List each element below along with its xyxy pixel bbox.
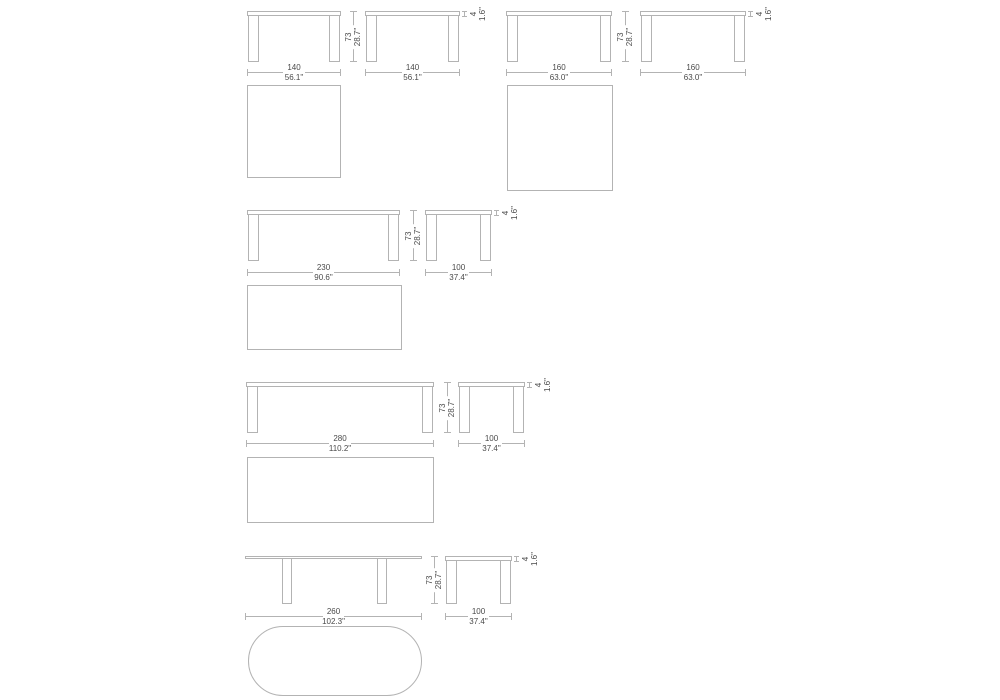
height-in-label: 28.7" xyxy=(448,398,457,416)
height-cm-label: 73 xyxy=(439,398,448,416)
table-leg-shape xyxy=(426,214,437,261)
top-view-rect-280 xyxy=(247,457,434,523)
front-view-table-140 xyxy=(247,11,341,62)
table-leg-shape xyxy=(734,15,745,62)
width-dimension-260-side: 100 37.4" xyxy=(445,607,512,626)
table-leg-shape xyxy=(248,15,259,62)
width-cm-label: 160 xyxy=(682,63,703,73)
height-cm-label: 73 xyxy=(405,226,414,244)
front-view-table-230 xyxy=(247,210,400,261)
thickness-cm-label: 4 xyxy=(521,552,530,566)
tabletop-shape xyxy=(365,11,460,16)
top-view-rect-230 xyxy=(247,285,402,350)
table-leg-shape xyxy=(500,560,511,604)
height-dimension-260: 73 28.7" xyxy=(425,556,444,604)
table-leg-shape xyxy=(247,386,258,433)
side-view-table-260 xyxy=(445,556,512,604)
width-in-label: 37.4" xyxy=(479,444,503,453)
side-view-table-140 xyxy=(365,11,460,62)
table-leg-shape xyxy=(446,560,457,604)
width-dimension-230-front: 230 90.6" xyxy=(247,263,400,282)
thickness-dimension-230: 4 1.6" xyxy=(494,210,526,216)
width-dimension-280-front: 280 110.2" xyxy=(246,434,434,453)
thickness-cm-label: 4 xyxy=(534,378,543,392)
table-leg-shape xyxy=(377,558,387,604)
top-view-square-140 xyxy=(247,85,341,178)
width-in-label: 63.0" xyxy=(681,73,705,82)
height-in-label: 28.7" xyxy=(435,571,444,589)
width-cm-label: 100 xyxy=(468,607,489,617)
table-leg-shape xyxy=(641,15,652,62)
width-dimension-230-side: 100 37.4" xyxy=(425,263,492,282)
thickness-dimension-160: 4 1.6" xyxy=(748,11,780,17)
tabletop-shape xyxy=(245,556,422,559)
thickness-dimension-280: 4 1.6" xyxy=(527,382,559,388)
width-in-label: 37.4" xyxy=(466,617,490,626)
width-cm-label: 140 xyxy=(402,63,423,73)
width-dimension-160-side: 160 63.0" xyxy=(640,63,746,82)
table-leg-shape xyxy=(329,15,340,62)
width-in-label: 110.2" xyxy=(326,444,354,453)
table-leg-shape xyxy=(513,386,524,433)
side-view-table-280 xyxy=(458,382,525,433)
table-leg-shape xyxy=(448,15,459,62)
tabletop-shape xyxy=(506,11,612,16)
width-dimension-280-side: 100 37.4" xyxy=(458,434,525,453)
height-in-label: 28.7" xyxy=(626,27,635,45)
tabletop-shape xyxy=(246,382,434,387)
table-leg-shape xyxy=(366,15,377,62)
height-dimension-280: 73 28.7" xyxy=(438,382,457,433)
table-leg-shape xyxy=(248,214,259,261)
width-cm-label: 100 xyxy=(448,263,469,273)
tabletop-shape xyxy=(247,11,341,16)
technical-drawing-canvas: 73 28.7" 4 1.6" 140 56.1" 140 56.1" xyxy=(0,0,1000,700)
thickness-cm-label: 4 xyxy=(501,206,510,220)
thickness-dimension-260: 4 1.6" xyxy=(514,556,546,562)
height-dimension-140: 73 28.7" xyxy=(344,11,363,62)
width-dimension-160-front: 160 63.0" xyxy=(506,63,612,82)
table-leg-shape xyxy=(480,214,491,261)
width-in-label: 63.0" xyxy=(547,73,571,82)
width-cm-label: 100 xyxy=(481,434,502,444)
table-leg-shape xyxy=(422,386,433,433)
front-view-table-260 xyxy=(245,556,422,604)
table-leg-shape xyxy=(507,15,518,62)
width-cm-label: 160 xyxy=(548,63,569,73)
thickness-cm-label: 4 xyxy=(755,7,764,21)
height-cm-label: 73 xyxy=(345,27,354,45)
thickness-in-label: 1.6" xyxy=(530,552,539,566)
height-dimension-230: 73 28.7" xyxy=(404,210,423,261)
width-in-label: 90.6" xyxy=(311,273,335,282)
width-cm-label: 230 xyxy=(313,263,334,273)
top-view-square-160 xyxy=(507,85,613,191)
table-leg-shape xyxy=(459,386,470,433)
side-view-table-160 xyxy=(640,11,746,62)
width-cm-label: 140 xyxy=(283,63,304,73)
width-dimension-140-side: 140 56.1" xyxy=(365,63,460,82)
height-cm-label: 73 xyxy=(617,27,626,45)
thickness-dimension-140: 4 1.6" xyxy=(462,11,494,17)
side-view-table-230 xyxy=(425,210,492,261)
thickness-cm-label: 4 xyxy=(469,7,478,21)
table-leg-shape xyxy=(600,15,611,62)
top-view-oval-260 xyxy=(248,626,422,696)
height-dimension-160: 73 28.7" xyxy=(616,11,635,62)
front-view-table-160 xyxy=(506,11,612,62)
height-in-label: 28.7" xyxy=(414,226,423,244)
thickness-in-label: 1.6" xyxy=(478,7,487,21)
width-dimension-140-front: 140 56.1" xyxy=(247,63,341,82)
front-view-table-280 xyxy=(246,382,434,433)
table-leg-shape xyxy=(388,214,399,261)
thickness-in-label: 1.6" xyxy=(764,7,773,21)
tabletop-shape xyxy=(640,11,746,16)
width-dimension-260-front: 260 102.3" xyxy=(245,607,422,626)
thickness-in-label: 1.6" xyxy=(543,378,552,392)
height-in-label: 28.7" xyxy=(354,27,363,45)
height-cm-label: 73 xyxy=(426,571,435,589)
width-in-label: 56.1" xyxy=(282,73,306,82)
width-cm-label: 260 xyxy=(323,607,344,617)
table-leg-shape xyxy=(282,558,292,604)
width-in-label: 37.4" xyxy=(446,273,470,282)
tabletop-shape xyxy=(247,210,400,215)
thickness-in-label: 1.6" xyxy=(510,206,519,220)
width-cm-label: 280 xyxy=(329,434,350,444)
width-in-label: 102.3" xyxy=(319,617,348,626)
width-in-label: 56.1" xyxy=(400,73,424,82)
